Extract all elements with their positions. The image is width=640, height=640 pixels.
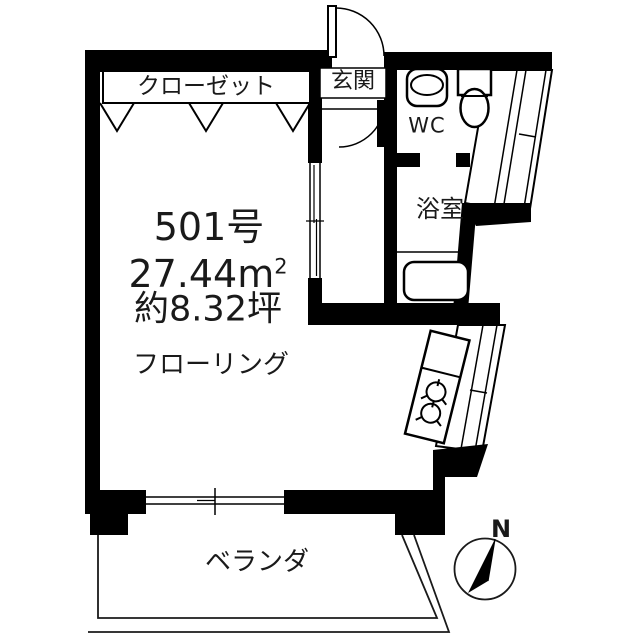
- floorplan-page: クローゼット 玄関 WC 浴室 501号 27.44m2 約8.32坪 フローリ…: [0, 0, 640, 640]
- toilet-icon: [458, 69, 491, 127]
- area-m2-label: 27.44m2: [128, 255, 287, 293]
- entrance-label: 玄関: [331, 71, 375, 93]
- entrance-door: [328, 6, 384, 57]
- sliding-door-main-hall: [306, 163, 324, 278]
- compass-icon: [455, 539, 516, 600]
- flooring-label: フローリング: [133, 352, 289, 378]
- closet-hanger-icons: [100, 103, 310, 131]
- main-window: [146, 488, 284, 515]
- bath-label: 浴室: [416, 197, 464, 221]
- unit-number-label: 501号: [154, 208, 265, 246]
- closet-label: クローゼット: [137, 76, 275, 99]
- area-tsubo-label: 約8.32坪: [134, 293, 282, 328]
- compass-north-label: N: [491, 517, 511, 541]
- area-m2-sup: 2: [274, 254, 287, 278]
- wc-label: WC: [408, 116, 445, 137]
- floorplan-drawing: [0, 0, 640, 640]
- veranda-label: ベランダ: [205, 549, 309, 575]
- washbasin-icon: [407, 69, 447, 106]
